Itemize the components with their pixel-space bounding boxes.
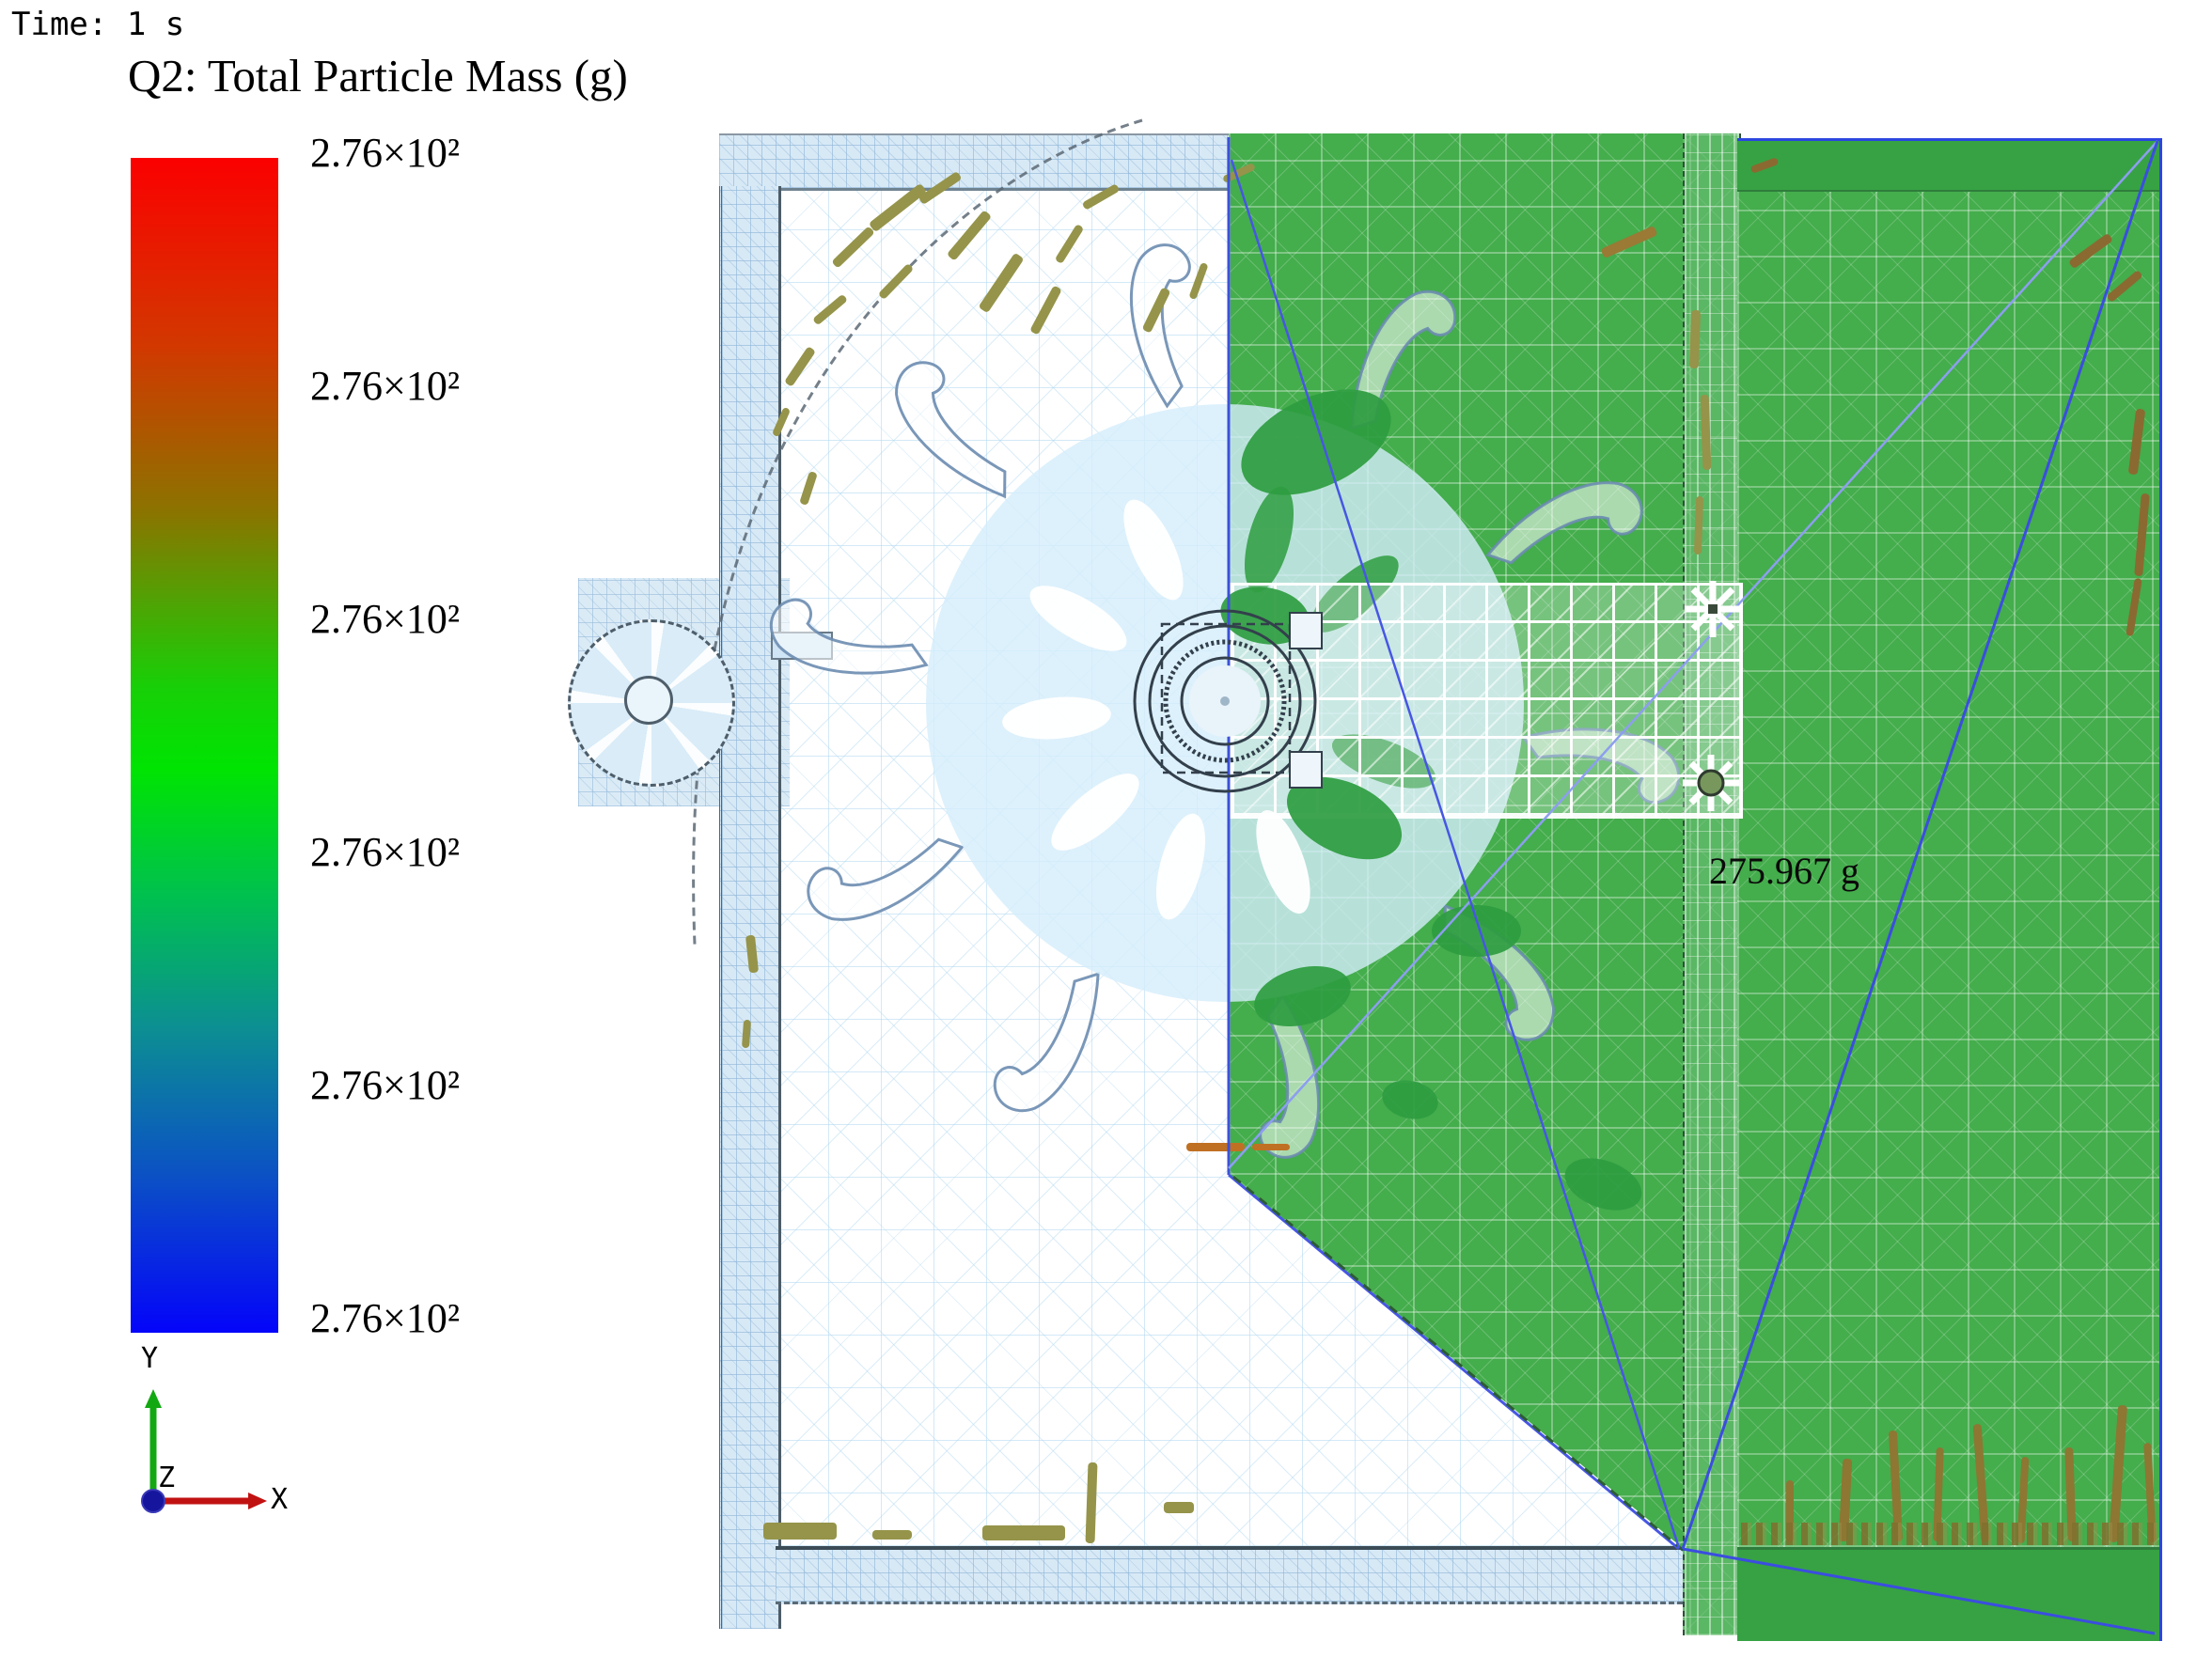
settled-particle-layer	[1741, 1523, 2157, 1545]
colorbar-label: 2.76×10²	[310, 1294, 460, 1342]
mass-annotation: 275.967 g	[1709, 849, 1859, 893]
viewport-canvas[interactable]: Time: 1 s Q2: Total Particle Mass (g) 2.…	[0, 0, 2212, 1657]
drive-wheel-hub	[624, 676, 673, 725]
axis-x-label: X	[271, 1483, 288, 1516]
axis-y-label: Y	[141, 1342, 158, 1375]
plot-title: Q2: Total Particle Mass (g)	[128, 49, 628, 102]
tank-left-wall	[719, 186, 781, 1629]
sample-duct-grid	[1229, 583, 1743, 819]
time-label: Time: 1 s	[11, 6, 184, 43]
colorbar-label: 2.76×10²	[310, 828, 460, 876]
colorbar-label: 2.76×10²	[310, 595, 460, 643]
colorbar-label: 2.76×10²	[310, 129, 460, 177]
support-arm	[771, 632, 833, 660]
axis-z-label: Z	[158, 1462, 175, 1494]
tank-floor-wall	[776, 1546, 1683, 1604]
panel-header-band	[1737, 141, 2159, 192]
colorbar-label: 2.76×10²	[310, 362, 460, 410]
panel-bottom-band	[1737, 1547, 2159, 1641]
colorbar-label: 2.76×10²	[310, 1061, 460, 1109]
colorbar-gradient	[131, 158, 278, 1333]
tank-top-wall	[719, 133, 1229, 191]
